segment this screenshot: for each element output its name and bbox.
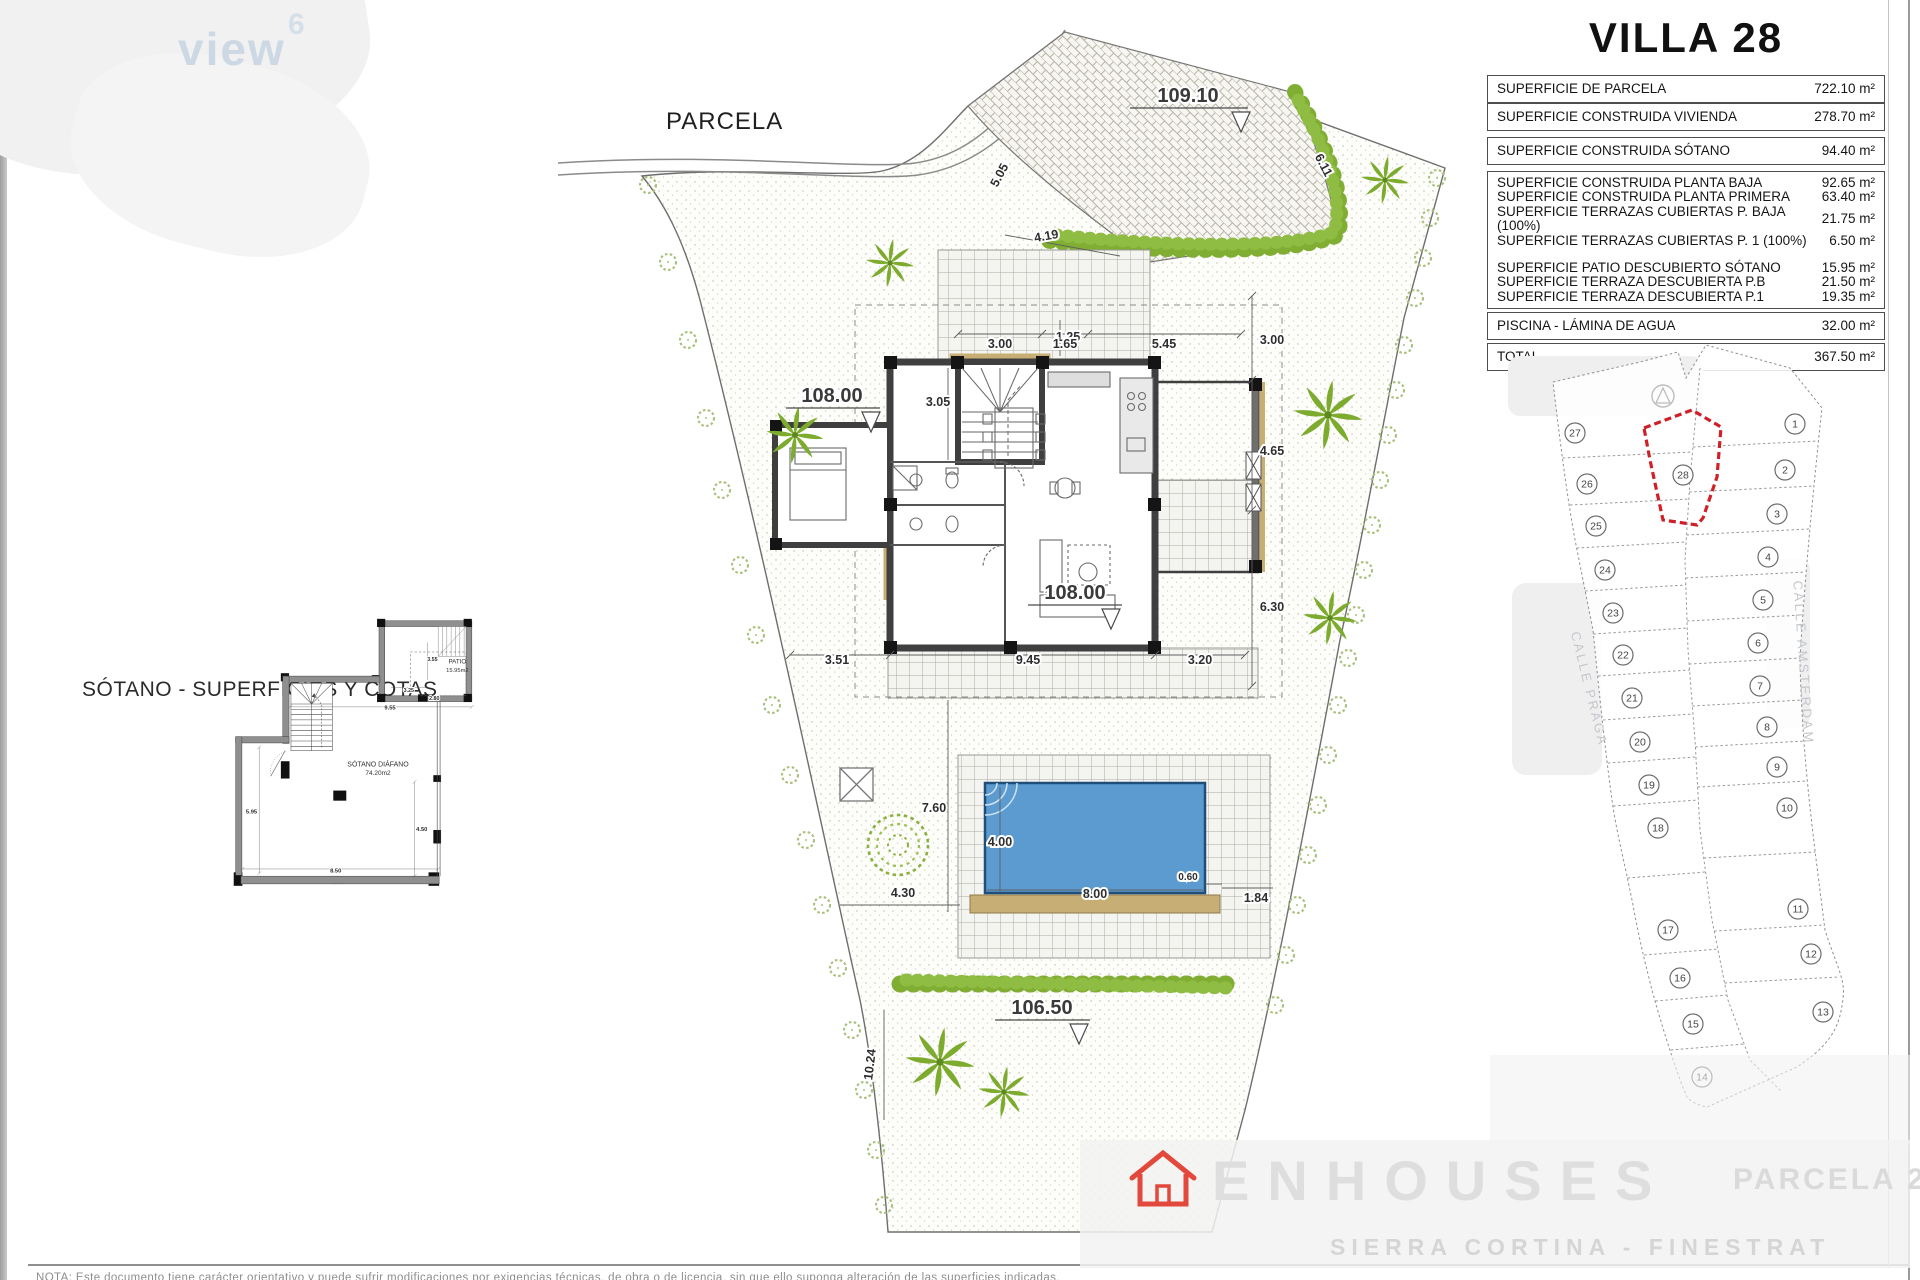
table-row: SUPERFICIE TERRAZA DESCUBIERTA P.119.35 … — [1488, 290, 1884, 304]
dimension-label: 8.50 — [330, 868, 341, 874]
pool-water — [985, 783, 1205, 893]
parcel-number-label: 3 — [1774, 509, 1780, 521]
parcel-number-label: 21 — [1626, 693, 1638, 705]
basement-main-walls — [236, 676, 439, 884]
parcel-number: 20 — [1630, 732, 1650, 752]
table-row-value: 278.70 m² — [1814, 104, 1875, 130]
dimension-label: 3.55 — [427, 657, 437, 663]
parcel-number: 7 — [1750, 676, 1770, 696]
parcel-number-label: 25 — [1590, 521, 1602, 533]
bush-icon — [1364, 517, 1380, 533]
dimension-label: 3.00 — [1260, 333, 1284, 347]
parcel-number-label: 24 — [1599, 565, 1611, 577]
bush-icon — [1320, 747, 1336, 763]
table-row-label: SUPERFICIE TERRAZAS CUBIERTAS P. 1 (100%… — [1497, 234, 1807, 248]
table-row: SUPERFICIE TERRAZA DESCUBIERTA P.B21.50 … — [1488, 275, 1884, 289]
dimension-label: 6.30 — [1260, 600, 1284, 614]
table-row: SUPERFICIE TERRAZAS CUBIERTAS P. 1 (100%… — [1488, 234, 1884, 248]
watermark-band-2 — [1490, 1055, 1910, 1145]
watermark-location: SIERRA CORTINA - FINESTRAT — [1330, 1234, 1830, 1261]
table-row-label: SUPERFICIE DE PARCELA — [1497, 76, 1666, 102]
parcel-number: 28 — [1673, 465, 1693, 485]
parcel-number-label: 7 — [1757, 681, 1763, 693]
bush-icon — [732, 557, 748, 573]
parcel-number: 25 — [1586, 516, 1606, 536]
parcel-number: 19 — [1639, 775, 1659, 795]
parcel-number-label: 11 — [1793, 904, 1804, 916]
table-row-label: SUPERFICIE CONSTRUIDA SÓTANO — [1497, 138, 1730, 164]
basement-glazed-wall — [437, 702, 440, 877]
parcel-number: 15 — [1683, 1014, 1703, 1034]
watermark-view-logo: view — [178, 22, 286, 76]
patio-area-label: 15.95m2 — [446, 668, 468, 674]
parcel-number-label: 18 — [1652, 823, 1664, 835]
watermark-view-superscript: 6 — [288, 8, 305, 42]
parcel-number: 16 — [1670, 968, 1690, 988]
bush-icon — [1267, 997, 1283, 1013]
dimension-label: 4.30 — [891, 886, 915, 900]
parcel-number: 12 — [1801, 944, 1821, 964]
parcel-number-label: 22 — [1617, 650, 1629, 662]
table-row-value: 19.35 m² — [1822, 290, 1875, 304]
bush-icon — [1372, 472, 1388, 488]
parcel-number-label: 26 — [1581, 479, 1593, 491]
parcel-number: 27 — [1565, 423, 1585, 443]
plan-sheet: view 6 SÓTANO - SUPERFICIES Y COTAS PARC… — [0, 0, 1920, 1280]
parcel-number: 18 — [1648, 818, 1668, 838]
parcel-number-label: 27 — [1569, 428, 1581, 440]
bush-icon — [748, 627, 764, 643]
bush-icon — [844, 1022, 860, 1038]
bush-icon — [856, 1082, 872, 1098]
parcel-number: 2 — [1775, 460, 1795, 480]
table-row: SUPERFICIE PATIO DESCUBIERTO SÓTANO15.95… — [1488, 261, 1884, 275]
table-group: SUPERFICIE CONSTRUIDA PLANTA BAJA92.65 m… — [1487, 171, 1885, 309]
parcel-number-label: 8 — [1764, 722, 1770, 734]
table-row-label: SUPERFICIE TERRAZA DESCUBIERTA P.B — [1497, 275, 1765, 289]
bush-icon — [764, 697, 780, 713]
parcel-number: 13 — [1813, 1002, 1833, 1022]
elevation-value: 108.00 — [801, 385, 862, 407]
parcel-number: 3 — [1767, 504, 1787, 524]
table-row-label: SUPERFICIE TERRAZA DESCUBIERTA P.1 — [1497, 290, 1764, 304]
basement-room-area: 74.20m2 — [365, 770, 391, 777]
table-row-label: SUPERFICIE CONSTRUIDA VIVIENDA — [1497, 104, 1737, 130]
basement-dim-labels: 2.809.553.553.255.954.508.50 — [246, 657, 440, 874]
parcel-number: 5 — [1753, 590, 1773, 610]
bush-icon — [1356, 562, 1372, 578]
table-row: SUPERFICIE CONSTRUIDA VIVIENDA278.70 m² — [1488, 104, 1884, 130]
dimension-label: 3.05 — [926, 395, 950, 409]
basement-stairwell — [291, 683, 332, 750]
dimension-label: 2.80 — [429, 696, 439, 702]
parcel-number-label: 19 — [1643, 780, 1655, 792]
table-row-label: SUPERFICIE TERRAZAS CUBIERTAS P. BAJA (1… — [1497, 205, 1814, 234]
dimension-label: 4.00 — [988, 835, 1012, 849]
page-title: VILLA 28 — [1487, 14, 1885, 62]
watermark-brand: ENHOUSES — [1212, 1148, 1670, 1213]
parcel-number-label: 13 — [1817, 1007, 1829, 1019]
parcel-number-label: 4 — [1765, 552, 1771, 564]
table-group: SUPERFICIE CONSTRUIDA SÓTANO94.40 m² — [1487, 137, 1885, 165]
parcel-number-label: 16 — [1674, 973, 1686, 985]
parcel-number-label: 5 — [1760, 595, 1766, 607]
table-row: SUPERFICIE DE PARCELA722.10 m² — [1488, 76, 1884, 102]
bush-icon — [1310, 797, 1326, 813]
bush-icon — [714, 482, 730, 498]
dimension-label: 4.50 — [416, 827, 427, 833]
dimension-label: 8.00 — [1083, 887, 1107, 901]
basement-room-label: SÓTANO DIÁFANO — [347, 760, 409, 769]
table-row-value: 722.10 m² — [1814, 76, 1875, 102]
dimension-label: 3.25 — [404, 688, 414, 694]
table-row-value: 21.75 m² — [1822, 212, 1875, 226]
table-row-value: 63.40 m² — [1822, 190, 1875, 204]
patio-label: PATIO — [448, 659, 466, 666]
bush-icon — [1340, 650, 1356, 666]
dimension-label: 0.60 — [1178, 872, 1198, 883]
bush-icon — [1289, 897, 1305, 913]
bush-icon — [660, 254, 676, 270]
pool — [958, 755, 1270, 958]
parcel-number: 10 — [1777, 798, 1797, 818]
parcel-number: 11 — [1788, 899, 1808, 919]
table-row-value: 15.95 m² — [1822, 261, 1875, 275]
table-row-value: 21.50 m² — [1822, 275, 1875, 289]
parcel-number-label: 28 — [1677, 470, 1689, 482]
table-row-value: 94.40 m² — [1822, 138, 1875, 164]
parcel-number: 4 — [1758, 547, 1778, 567]
parcel-number: 9 — [1767, 757, 1787, 777]
table-row: SUPERFICIE CONSTRUIDA PLANTA BAJA92.65 m… — [1488, 176, 1884, 190]
site-plan: 109.10108.00108.00106.50 5.056.114.191.2… — [555, 20, 1460, 1245]
bush-icon — [1278, 947, 1294, 963]
parcel-number-label: 6 — [1755, 638, 1761, 650]
dimension-label: 5.45 — [1152, 337, 1176, 351]
elevation-value: 109.10 — [1157, 85, 1218, 107]
bush-icon — [1300, 847, 1316, 863]
bush-icon — [698, 410, 714, 426]
parcel-number-label: 10 — [1781, 803, 1793, 815]
dimension-label: 1.84 — [1244, 891, 1268, 905]
table-row: SUPERFICIE CONSTRUIDA SÓTANO94.40 m² — [1488, 138, 1884, 164]
house-logo-icon — [1124, 1146, 1202, 1212]
parcel-number: 23 — [1603, 603, 1623, 623]
parcel-number-label: 9 — [1774, 762, 1780, 774]
footer-note: NOTA: Este documento tiene carácter orie… — [36, 1272, 1886, 1280]
parcel-number-label: 17 — [1662, 925, 1674, 937]
table-group: SUPERFICIE CONSTRUIDA VIVIENDA278.70 m² — [1487, 103, 1885, 131]
parcel-number-label: 2 — [1782, 465, 1788, 477]
parcel-number: 6 — [1748, 633, 1768, 653]
dimension-label: 9.55 — [384, 705, 396, 711]
scan-edge-strip — [0, 0, 7, 1280]
parcel-number: 26 — [1577, 474, 1597, 494]
elevation-value: 106.50 — [1011, 997, 1072, 1019]
table-row-label: SUPERFICIE CONSTRUIDA PLANTA PRIMERA — [1497, 190, 1790, 204]
bush-icon — [1330, 697, 1346, 713]
parcel-number-label: 15 — [1687, 1019, 1699, 1031]
dimension-label: 5.95 — [246, 810, 258, 816]
bush-icon — [798, 832, 814, 848]
table-row-value: 6.50 m² — [1829, 234, 1875, 248]
table-row-value: 92.65 m² — [1822, 176, 1875, 190]
parcel-number-label: 20 — [1634, 737, 1646, 749]
utility-box — [840, 768, 873, 801]
dimension-label: 4.65 — [1260, 444, 1284, 458]
bush-icon — [814, 897, 830, 913]
dimension-label: 7.60 — [922, 801, 946, 815]
bush-icon — [680, 332, 696, 348]
dimension-label: 1.65 — [1053, 337, 1077, 351]
table-row: SUPERFICIE TERRAZAS CUBIERTAS P. BAJA (1… — [1488, 205, 1884, 234]
table-row: SUPERFICIE CONSTRUIDA PLANTA PRIMERA63.4… — [1488, 190, 1884, 204]
table-row-label: SUPERFICIE CONSTRUIDA PLANTA BAJA — [1497, 176, 1762, 190]
dimension-label: 9.45 — [1016, 653, 1040, 667]
parcel-number-label: 1 — [1792, 419, 1798, 431]
parcel-number: 22 — [1613, 645, 1633, 665]
bush-icon — [830, 960, 846, 976]
parcel-number: 24 — [1595, 560, 1615, 580]
parcel-number: 1 — [1785, 414, 1805, 434]
watermark-plot: PARCELA 28 — [1733, 1163, 1920, 1197]
parcel-number: 21 — [1622, 688, 1642, 708]
parcel-number: 8 — [1757, 717, 1777, 737]
parcel-number: 17 — [1658, 920, 1678, 940]
dimension-label: 3.51 — [825, 653, 849, 667]
elevation-value: 108.00 — [1044, 582, 1105, 604]
dimension-label: 3.00 — [988, 337, 1012, 351]
parcel-number-label: 12 — [1805, 949, 1817, 961]
parcel-number-label: 23 — [1607, 608, 1619, 620]
table-group: SUPERFICIE DE PARCELA722.10 m² — [1487, 75, 1885, 103]
dimension-label: 3.20 — [1188, 653, 1212, 667]
bush-icon — [782, 767, 798, 783]
table-row-label: SUPERFICIE PATIO DESCUBIERTO SÓTANO — [1497, 261, 1781, 275]
bush-icon — [1380, 427, 1396, 443]
